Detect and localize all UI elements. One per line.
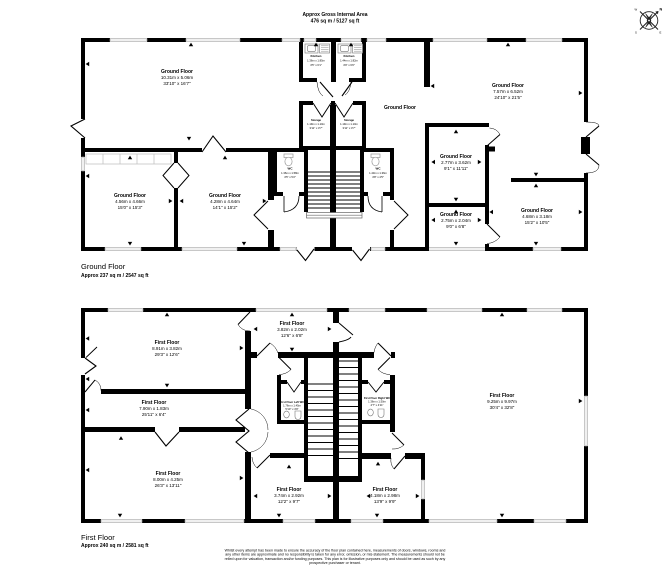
svg-text:First Floor Right WC: First Floor Right WC — [364, 396, 390, 400]
svg-text:Storage: Storage — [344, 118, 355, 122]
svg-text:N: N — [660, 8, 663, 12]
svg-text:9'0" x 6'8": 9'0" x 6'8" — [446, 224, 466, 229]
svg-text:33'10" x 16'7": 33'10" x 16'7" — [163, 81, 191, 86]
svg-text:Ground Floor: Ground Floor — [81, 262, 126, 271]
svg-text:First Floor Left WC: First Floor Left WC — [280, 400, 304, 404]
svg-text:Approx 240 sq m / 2581 sq ft: Approx 240 sq m / 2581 sq ft — [81, 543, 149, 549]
svg-text:9'1" x 11'11": 9'1" x 11'11" — [444, 166, 468, 171]
svg-text:26'3" x 13'11": 26'3" x 13'11" — [155, 483, 182, 488]
svg-text:E: E — [660, 31, 662, 35]
svg-text:1.19m x 1.10m: 1.19m x 1.10m — [340, 122, 359, 126]
svg-text:4.18m x 2.98m: 4.18m x 2.98m — [370, 493, 400, 498]
svg-text:First Floor: First Floor — [81, 533, 115, 542]
svg-text:WC: WC — [376, 167, 382, 171]
svg-text:30'4" x 32'8": 30'4" x 32'8" — [490, 405, 515, 410]
svg-text:10.31m x 5.06m: 10.31m x 5.06m — [161, 75, 194, 80]
svg-text:Ground Floor: Ground Floor — [384, 105, 416, 111]
svg-text:1.36m x 1.85m: 1.36m x 1.85m — [307, 59, 326, 63]
svg-text:2.75m x 2.04m: 2.75m x 2.04m — [441, 218, 471, 223]
svg-text:Approx 237 sq m / 2547 sq ft: Approx 237 sq m / 2547 sq ft — [81, 273, 149, 279]
svg-text:4'5" x 6'1": 4'5" x 6'1" — [310, 63, 322, 67]
svg-text:25'11" x 6'4": 25'11" x 6'4" — [142, 412, 167, 417]
svg-text:8.00m x 4.25m: 8.00m x 4.25m — [153, 477, 183, 482]
svg-text:4.68m x 3.18m: 4.68m x 3.18m — [522, 214, 552, 219]
svg-text:4.28m x 4.64m: 4.28m x 4.64m — [210, 199, 240, 204]
svg-text:W: W — [635, 8, 638, 12]
svg-text:Kitchen: Kitchen — [343, 54, 354, 58]
svg-text:4'8" x 4'5": 4'8" x 4'5" — [372, 175, 384, 179]
svg-text:476 sq m / 5127 sq ft: 476 sq m / 5127 sq ft — [311, 19, 360, 25]
svg-text:3.82m x 2.02m: 3.82m x 2.02m — [277, 327, 307, 332]
svg-text:7.57m x 6.52m: 7.57m x 6.52m — [493, 89, 523, 94]
svg-text:3.74m x 2.92m: 3.74m x 2.92m — [274, 493, 304, 498]
svg-text:prospective purchaser or tenan: prospective purchaser or tenant. — [309, 561, 361, 565]
svg-text:12'6" x 6'8": 12'6" x 6'8" — [281, 333, 304, 338]
svg-text:9.25m x 9.97m: 9.25m x 9.97m — [487, 399, 517, 404]
svg-text:4'9" x 6'0": 4'9" x 6'0" — [343, 63, 355, 67]
svg-text:Storage: Storage — [311, 118, 322, 122]
svg-text:1.43m x 1.36m: 1.43m x 1.36m — [369, 171, 388, 175]
svg-text:3'11" x 3'7": 3'11" x 3'7" — [309, 126, 322, 130]
svg-text:24'10" x 21'5": 24'10" x 21'5" — [494, 95, 522, 100]
svg-text:29'3" x 12'6": 29'3" x 12'6" — [155, 352, 180, 357]
svg-text:14'1" x 15'2": 14'1" x 15'2" — [213, 205, 238, 210]
svg-text:2.77m x 3.62m: 2.77m x 3.62m — [441, 160, 471, 165]
svg-text:1.76m x 1.45m: 1.76m x 1.45m — [283, 404, 302, 408]
svg-text:Approx Gross Internal Area: Approx Gross Internal Area — [302, 12, 367, 18]
svg-text:13'9" x 9'9": 13'9" x 9'9" — [374, 499, 397, 504]
svg-text:15'2" x 10'5": 15'2" x 10'5" — [525, 220, 550, 225]
svg-text:1.36m x 1.50m: 1.36m x 1.50m — [368, 400, 387, 404]
svg-text:7.90m x 1.83m: 7.90m x 1.83m — [139, 406, 169, 411]
svg-text:15'0" x 15'3": 15'0" x 15'3" — [118, 205, 143, 210]
svg-text:S: S — [635, 31, 637, 35]
svg-text:Kitchen: Kitchen — [310, 54, 321, 58]
svg-text:3'11" x 3'7": 3'11" x 3'7" — [342, 126, 355, 130]
svg-text:WC: WC — [288, 167, 294, 171]
svg-text:1.44m x 1.82m: 1.44m x 1.82m — [340, 59, 359, 63]
svg-text:8.91m x 3.82m: 8.91m x 3.82m — [152, 346, 182, 351]
svg-text:5'10" x 4'9": 5'10" x 4'9" — [285, 407, 298, 411]
svg-text:1.36m x 1.58m: 1.36m x 1.58m — [281, 171, 300, 175]
svg-text:4'7" x 4'11": 4'7" x 4'11" — [370, 403, 383, 407]
svg-text:4.56m x 4.66m: 4.56m x 4.66m — [115, 199, 145, 204]
svg-text:1.19m x 1.10m: 1.19m x 1.10m — [307, 122, 326, 126]
svg-text:12'2" x 9'7": 12'2" x 9'7" — [278, 499, 301, 504]
svg-text:4'5" x 5'2": 4'5" x 5'2" — [284, 175, 296, 179]
